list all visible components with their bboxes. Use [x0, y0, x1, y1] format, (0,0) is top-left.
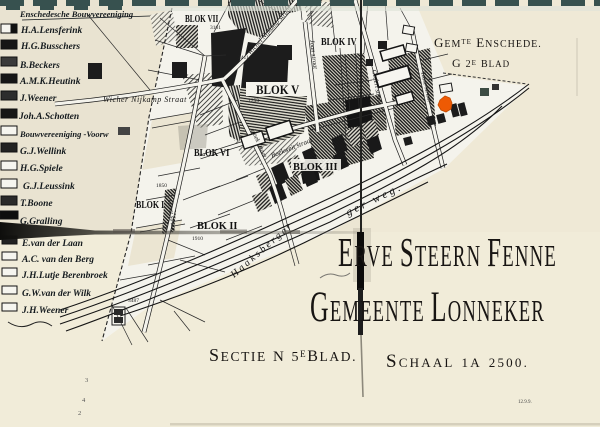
- svg-text:J.H.Lutje Berenbroek: J.H.Lutje Berenbroek: [21, 271, 108, 281]
- svg-text:BLOK III: BLOK III: [293, 161, 337, 173]
- svg-text:B.Beckers: B.Beckers: [19, 61, 60, 71]
- svg-text:BLOK VII: BLOK VII: [185, 13, 219, 24]
- svg-text:J.Weener: J.Weener: [19, 94, 57, 104]
- svg-text:E.van der Laan: E.van der Laan: [21, 239, 83, 249]
- svg-text:BLOK IV: BLOK IV: [321, 36, 357, 47]
- svg-text:3161: 3161: [210, 25, 221, 31]
- svg-text:Enschedesche Bouwvereeniging: Enschedesche Bouwvereeniging: [19, 9, 134, 19]
- svg-text:3: 3: [85, 377, 88, 384]
- svg-text:3487: 3487: [128, 298, 139, 304]
- svg-text:A.M.K.Heutink: A.M.K.Heutink: [19, 77, 81, 87]
- svg-text:G.J.Wellink: G.J.Wellink: [20, 147, 67, 157]
- svg-text:1910: 1910: [192, 236, 203, 242]
- svg-text:2: 2: [78, 410, 81, 417]
- svg-text:H.G.Spiele: H.G.Spiele: [19, 164, 64, 174]
- svg-text:Wicher Nijkamp Straat: Wicher Nijkamp Straat: [103, 95, 187, 104]
- svg-text:Joh.A.Schotten: Joh.A.Schotten: [18, 112, 79, 122]
- svg-text:A.C. van den Berg: A.C. van den Berg: [21, 255, 94, 265]
- svg-text:T.Boone: T.Boone: [20, 199, 53, 209]
- svg-text:ERVE STEERN FENNE: ERVE STEERN FENNE: [338, 231, 557, 276]
- svg-text:BLOK I: BLOK I: [136, 199, 165, 210]
- svg-text:2411: 2411: [238, 55, 249, 61]
- svg-text:1253: 1253: [248, 98, 259, 104]
- svg-text:BLOK VI: BLOK VI: [194, 147, 229, 159]
- svg-text:H.A.Lensferink: H.A.Lensferink: [20, 26, 82, 36]
- svg-text:BLOK V: BLOK V: [256, 82, 300, 97]
- svg-text:H.G.Busschers: H.G.Busschers: [20, 42, 80, 52]
- svg-text:SCHAAL 1A 2500.: SCHAAL 1A 2500.: [386, 351, 529, 372]
- svg-text:J.H.Weener: J.H.Weener: [21, 306, 69, 316]
- svg-text:G.J.Leussink: G.J.Leussink: [23, 182, 75, 192]
- svg-text:12.9.9.: 12.9.9.: [518, 400, 532, 405]
- svg-text:G.W.van der Wilk: G.W.van der Wilk: [22, 289, 91, 299]
- svg-text:1850: 1850: [156, 183, 167, 189]
- svg-text:Bouwvereeniging -Voorw: Bouwvereeniging -Voorw: [19, 129, 109, 139]
